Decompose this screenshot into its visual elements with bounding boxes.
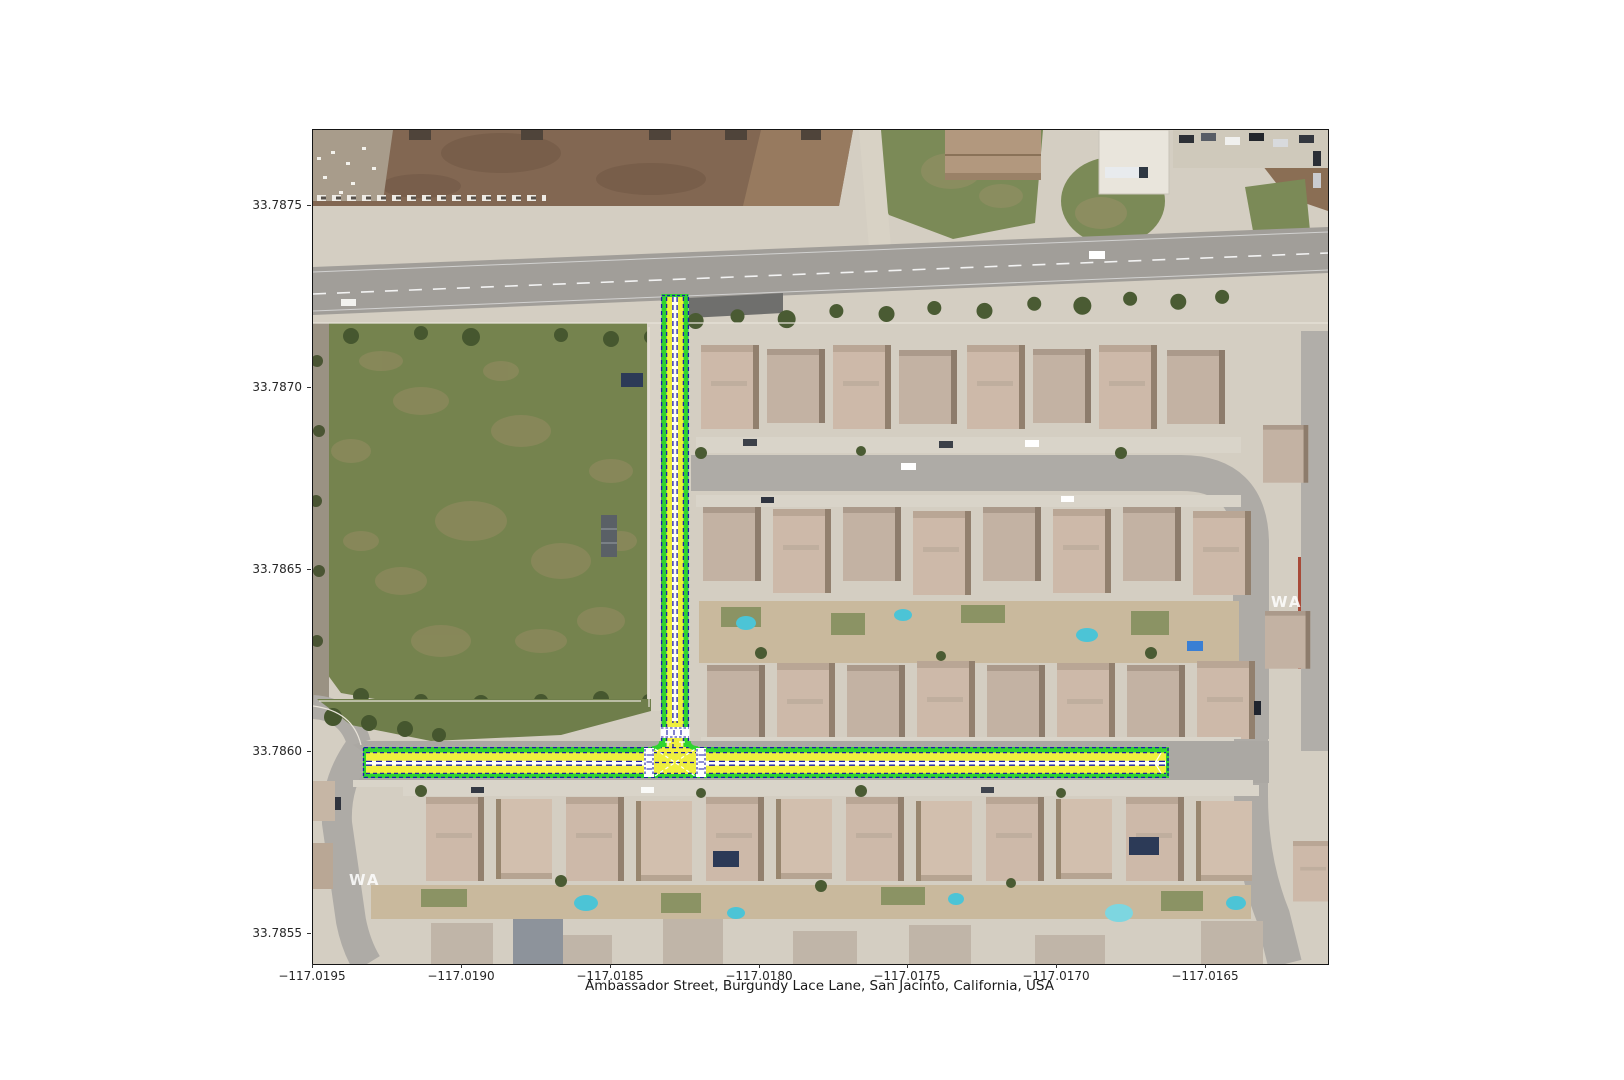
x-tick-label: −117.0165 [1171, 969, 1238, 983]
x-tick-label: −117.0180 [725, 969, 792, 983]
x-tick-mark [610, 964, 611, 968]
x-tick-label: −117.0195 [278, 969, 345, 983]
y-tick-label: 33.7860 [150, 744, 302, 758]
dirt-field [313, 130, 853, 206]
y-tick-mark [307, 933, 311, 934]
x-tick-label: −117.0170 [1022, 969, 1089, 983]
map-plot-area: WA WA [312, 129, 1329, 965]
y-tick-mark [307, 205, 311, 206]
park [313, 323, 663, 711]
x-tick-mark [907, 964, 908, 968]
x-tick-label: −117.0185 [576, 969, 643, 983]
x-tick-mark [1205, 964, 1206, 968]
park-shelter [601, 515, 617, 557]
y-tick-label: 33.7870 [150, 380, 302, 394]
imagery-watermark: WA [1271, 593, 1302, 611]
x-tick-mark [1056, 964, 1057, 968]
x-tick-mark [312, 964, 313, 968]
y-tick-label: 33.7865 [150, 562, 302, 576]
aerial-map-image: WA WA [313, 130, 1328, 964]
y-tick-mark [307, 751, 311, 752]
y-tick-mark [307, 387, 311, 388]
x-tick-mark [759, 964, 760, 968]
figure: WA WA [0, 0, 1624, 1080]
x-tick-label: −117.0175 [873, 969, 940, 983]
y-tick-label: 33.7875 [150, 198, 302, 212]
y-tick-label: 33.7855 [150, 926, 302, 940]
x-tick-mark [461, 964, 462, 968]
y-tick-mark [307, 569, 311, 570]
x-tick-label: −117.0190 [427, 969, 494, 983]
imagery-watermark: WA [349, 871, 380, 889]
